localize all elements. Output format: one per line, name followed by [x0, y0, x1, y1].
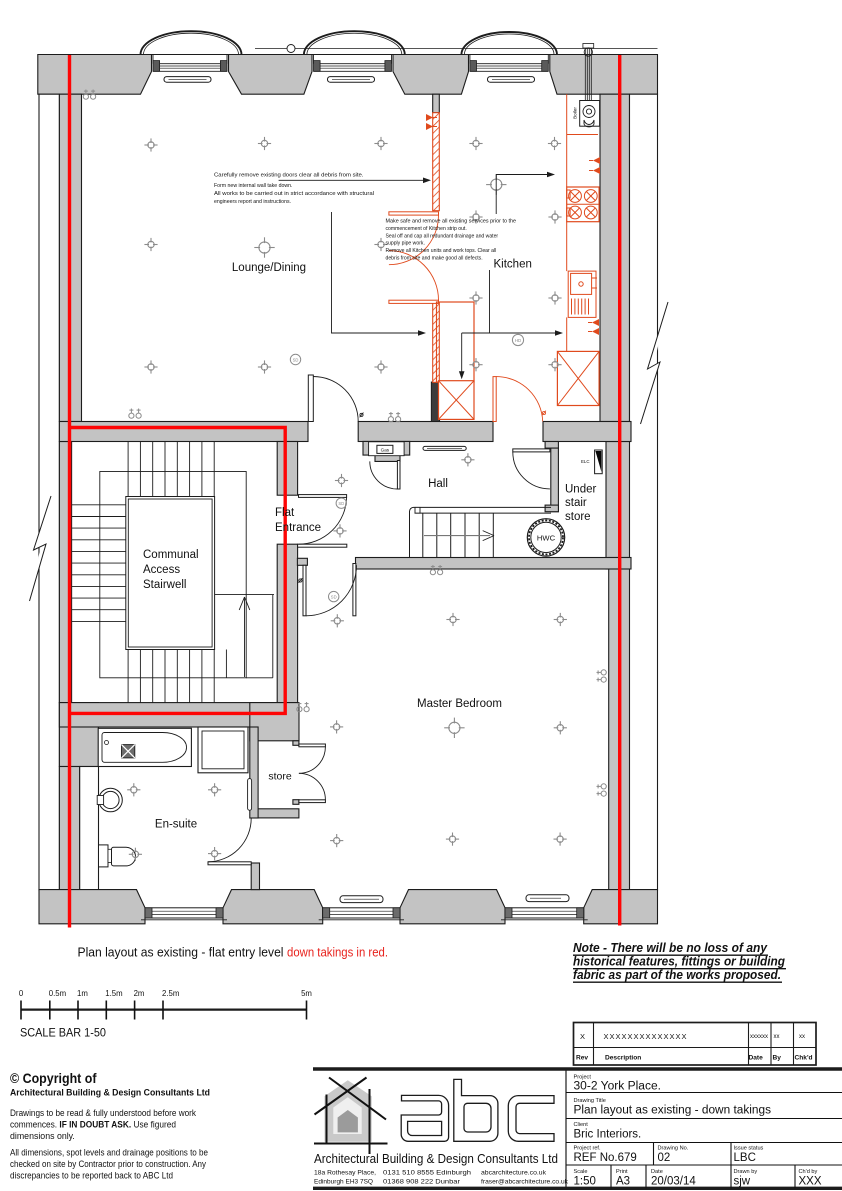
svg-text:fraser@abcarchitecture.co.uk: fraser@abcarchitecture.co.uk: [481, 1179, 569, 1186]
svg-text:20/03/14: 20/03/14: [651, 1176, 696, 1188]
svg-text:LBC: LBC: [734, 1152, 756, 1164]
svg-text:historical features, fittings: historical features, fittings or buildin…: [573, 955, 785, 969]
svg-text:02: 02: [658, 1152, 671, 1164]
svg-text:Drawn by: Drawn by: [734, 1169, 758, 1175]
svg-text:Boiler: Boiler: [573, 107, 578, 119]
svg-text:REF No.679: REF No.679: [574, 1152, 637, 1164]
svg-text:debris from site and make good: debris from site and make good all defec…: [386, 256, 483, 262]
svg-text:SD: SD: [338, 501, 344, 506]
svg-text:SD: SD: [331, 594, 337, 599]
svg-text:Description: Description: [605, 1055, 641, 1062]
svg-text:Under: Under: [565, 484, 596, 496]
svg-text:Carefully remove existing door: Carefully remove existing doors clear al…: [214, 173, 364, 179]
svg-text:xx: xx: [774, 1034, 780, 1040]
svg-text:Master Bedroom: Master Bedroom: [417, 698, 502, 710]
svg-text:Make safe and remove all exist: Make safe and remove all existing servic…: [386, 219, 517, 225]
svg-text:supply pipe work.: supply pipe work.: [386, 241, 425, 247]
svg-text:30-2 York Place.: 30-2 York Place.: [574, 1081, 662, 1093]
svg-text:XXX: XXX: [799, 1176, 822, 1188]
svg-text:fabric as part of the works pr: fabric as part of the works proposed.: [573, 968, 781, 982]
svg-text:Client: Client: [574, 1122, 589, 1128]
svg-text:Kitchen: Kitchen: [494, 259, 532, 271]
svg-text:X: X: [580, 1032, 585, 1041]
svg-text:18a Rothesay Place,: 18a Rothesay Place,: [314, 1170, 376, 1177]
svg-text:xx: xx: [799, 1034, 805, 1040]
svg-text:ELC: ELC: [581, 459, 590, 464]
svg-text:Scale: Scale: [574, 1169, 588, 1175]
svg-text:HD: HD: [515, 338, 521, 343]
svg-text:5m: 5m: [301, 989, 312, 998]
svg-text:store: store: [268, 771, 292, 783]
svg-text:By: By: [773, 1055, 782, 1062]
svg-text:checked on site by Contractor: checked on site by Contractor prior to c…: [10, 1159, 207, 1169]
svg-text:1m: 1m: [77, 989, 88, 998]
svg-text:01368 908 222 Dunbar: 01368 908 222 Dunbar: [383, 1179, 461, 1186]
svg-text:Print: Print: [616, 1169, 628, 1175]
svg-text:Architectural Building & Desig: Architectural Building & Design Consulta…: [10, 1088, 210, 1098]
svg-text:Project ref.: Project ref.: [574, 1146, 601, 1152]
svg-text:Note - There will be no loss o: Note - There will be no loss of any: [573, 941, 768, 955]
svg-text:Edinburgh EH3 7SQ: Edinburgh EH3 7SQ: [314, 1179, 373, 1186]
svg-text:Rev: Rev: [576, 1055, 588, 1062]
svg-text:XXXXXXXXXXXXXX: XXXXXXXXXXXXXX: [604, 1032, 688, 1041]
svg-text:Issue status: Issue status: [734, 1146, 764, 1152]
svg-text:discrepancies to be reported b: discrepancies to be reported back to ABC…: [10, 1171, 173, 1181]
svg-text:0.5m: 0.5m: [49, 989, 66, 998]
svg-text:Drawing Title: Drawing Title: [574, 1098, 606, 1104]
svg-text:Date: Date: [749, 1055, 764, 1062]
svg-text:Lounge/Dining: Lounge/Dining: [232, 262, 306, 274]
svg-text:Drawings to be read & fully un: Drawings to be read & fully understood b…: [10, 1108, 197, 1118]
svg-text:Chk'd: Chk'd: [795, 1055, 813, 1062]
svg-text:En-suite: En-suite: [155, 819, 197, 831]
svg-text:stair: stair: [565, 497, 587, 509]
svg-text:Plan layout as existing - flat: Plan layout as existing - flat entry lev…: [78, 946, 284, 960]
svg-text:Bric Interiors.: Bric Interiors.: [574, 1129, 642, 1141]
svg-text:xxxxxx: xxxxxx: [750, 1034, 768, 1040]
svg-text:Architectural Building & Desig: Architectural Building & Design Consulta…: [314, 1151, 558, 1166]
svg-text:engineers report and instructi: engineers report and instructions.: [214, 199, 291, 205]
svg-text:Hall: Hall: [428, 478, 448, 490]
svg-text:Date: Date: [651, 1169, 663, 1175]
svg-text:SCALE BAR 1-50: SCALE BAR 1-50: [20, 1026, 106, 1040]
svg-text:Stairwell: Stairwell: [143, 579, 186, 591]
svg-text:Access: Access: [143, 564, 180, 576]
svg-text:abcarchitecture.co.uk: abcarchitecture.co.uk: [481, 1170, 547, 1177]
svg-text:0131 510 8555 Edinburgh: 0131 510 8555 Edinburgh: [383, 1170, 471, 1177]
svg-text:2m: 2m: [134, 989, 145, 998]
svg-text:2.5m: 2.5m: [162, 989, 179, 998]
svg-text:Form new internal wall take do: Form new internal wall take down.: [214, 183, 292, 189]
svg-text:All dimensions, spot levels an: All dimensions, spot levels and drainage…: [10, 1148, 208, 1158]
svg-text:A3: A3: [616, 1176, 630, 1188]
svg-text:HWC: HWC: [537, 533, 556, 542]
svg-text:store: store: [565, 511, 591, 523]
svg-text:1.5m: 1.5m: [105, 989, 122, 998]
svg-text:sjw: sjw: [734, 1176, 751, 1188]
svg-text:Communal: Communal: [143, 549, 199, 561]
svg-text:All works to be carried out in: All works to be carried out in strict ac…: [214, 191, 374, 197]
svg-text:commencement of Kitchen strip: commencement of Kitchen strip out.: [386, 226, 467, 232]
svg-text:down takings in red.: down takings in red.: [287, 946, 388, 960]
svg-text:Drawing No.: Drawing No.: [658, 1146, 689, 1152]
svg-text:Flat: Flat: [275, 507, 295, 519]
svg-text:commences. IF IN DOUBT ASK. U: commences. IF IN DOUBT ASK. Use figured: [10, 1120, 176, 1130]
svg-text:Entrance: Entrance: [275, 522, 321, 534]
svg-text:Seal off and cap all redundant: Seal off and cap all redundant drainage …: [386, 233, 499, 239]
svg-text:SD: SD: [293, 357, 299, 362]
svg-text:Gas: Gas: [381, 447, 390, 452]
svg-text:Remove all Kitchen units and w: Remove all Kitchen units and work tops. …: [386, 248, 497, 254]
svg-text:0: 0: [19, 989, 24, 998]
svg-text:Ch'd by: Ch'd by: [799, 1169, 818, 1175]
svg-text:© Copyright of: © Copyright of: [10, 1071, 97, 1086]
svg-text:Plan layout as existing - down: Plan layout as existing - down takings: [574, 1105, 772, 1117]
svg-text:1:50: 1:50: [574, 1176, 596, 1188]
svg-text:dimensions only.: dimensions only.: [10, 1131, 75, 1141]
